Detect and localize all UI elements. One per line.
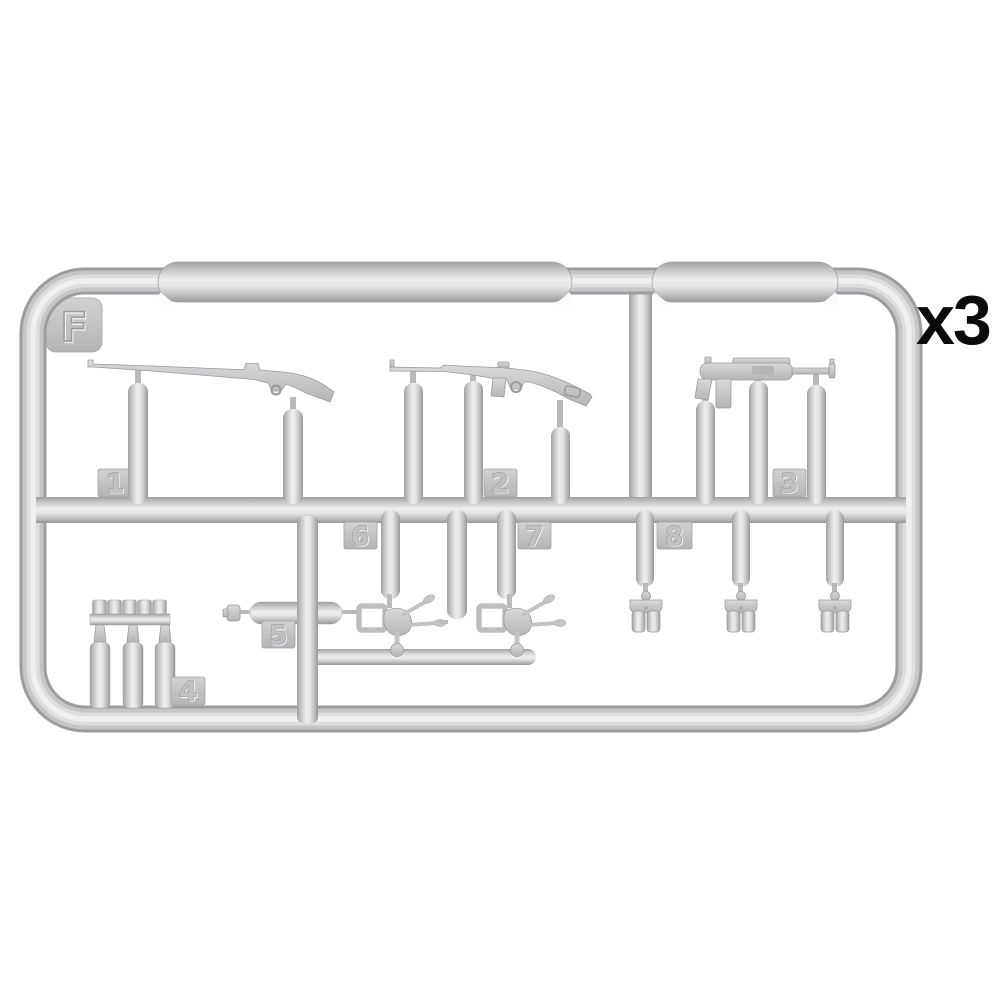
runner bbox=[497, 510, 516, 599]
runner bbox=[447, 510, 467, 619]
tab-number-1: 1 bbox=[106, 469, 124, 499]
multiplier-label: x3 bbox=[916, 281, 990, 359]
part-rifle bbox=[88, 360, 334, 402]
runner-long-left bbox=[297, 516, 318, 723]
part-group-5 bbox=[223, 602, 359, 648]
runner bbox=[749, 381, 768, 504]
runner bbox=[696, 401, 715, 504]
runner bbox=[826, 510, 844, 587]
runner bbox=[283, 409, 303, 504]
runner bbox=[807, 385, 826, 504]
part-ammo-pouch bbox=[725, 600, 757, 632]
runner bbox=[551, 427, 570, 504]
lower-runners bbox=[344, 510, 844, 619]
part-ammo-pouch bbox=[630, 600, 662, 632]
part-bottles bbox=[90, 625, 175, 708]
tab-number-2: 2 bbox=[491, 469, 509, 499]
sub-rail bbox=[307, 649, 536, 665]
tab-number-6: 6 bbox=[351, 522, 369, 552]
sprue-illustration: 1 1 2 2 3 3 4 4 5 5 6 6 7 7 8 8 F F x3 bbox=[0, 0, 1000, 1000]
part-bracket-7 bbox=[479, 593, 566, 657]
runner bbox=[128, 383, 148, 504]
tab-number-7: 7 bbox=[525, 522, 543, 552]
tab-number-8: 8 bbox=[665, 522, 683, 552]
runner bbox=[381, 510, 400, 599]
sprue-letter: F bbox=[60, 305, 87, 351]
part-ammo-pouch bbox=[819, 600, 851, 632]
runner bbox=[404, 383, 423, 504]
tab-number-3: 3 bbox=[780, 469, 798, 499]
part-group-3 bbox=[695, 357, 835, 504]
nozzle-tip bbox=[227, 605, 240, 621]
cap-bar bbox=[90, 614, 170, 625]
tab-number-4: 4 bbox=[179, 677, 197, 707]
runner bbox=[732, 510, 750, 587]
tab-number-5: 5 bbox=[269, 621, 287, 651]
runner bbox=[636, 510, 654, 587]
gate-bar-right bbox=[652, 262, 838, 302]
gate-bars bbox=[158, 262, 838, 305]
part-bracket-6 bbox=[359, 593, 446, 657]
gate-bar-left bbox=[158, 262, 572, 302]
runner-top-center bbox=[629, 290, 652, 512]
runner bbox=[464, 381, 483, 504]
sprue-photo: 1 1 2 2 3 3 4 4 5 5 6 6 7 7 8 8 F F x3 bbox=[0, 0, 1000, 1000]
part-caps bbox=[93, 600, 167, 616]
part-group-8 bbox=[630, 583, 851, 632]
